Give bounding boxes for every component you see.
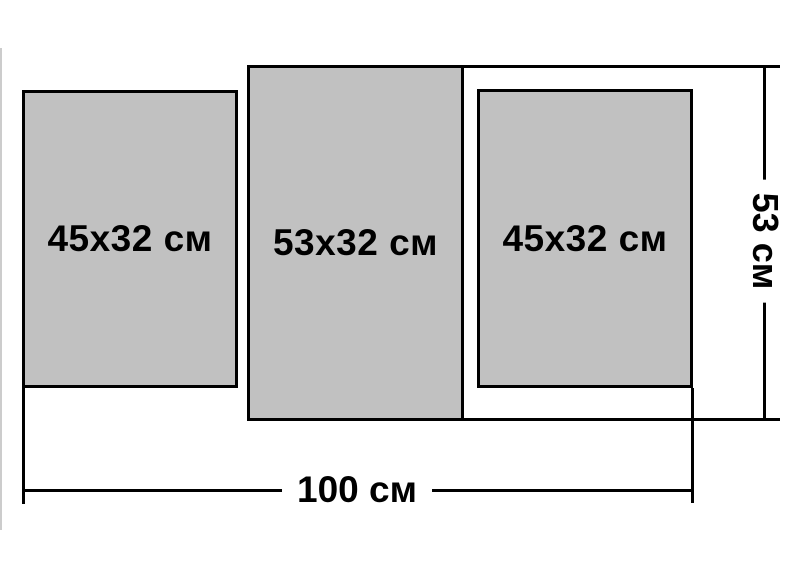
- panel-center-size-label: 53x32 см: [273, 222, 438, 264]
- width-dimension-tick-left: [22, 385, 25, 504]
- width-dimension-tick-right: [691, 388, 694, 503]
- left-edge-artifact-line: [0, 48, 2, 530]
- height-extension-line-bottom: [461, 418, 780, 421]
- height-extension-line-top: [461, 65, 780, 68]
- panel-right-size-label: 45x32 см: [502, 218, 667, 260]
- total-width-label: 100 см: [282, 469, 432, 511]
- triptych-size-diagram: 45x32 см 53x32 см 45x32 см 100 см 53 см: [0, 0, 800, 569]
- total-height-label: 53 см: [744, 180, 786, 303]
- panel-center: 53x32 см: [247, 65, 464, 421]
- panel-left-size-label: 45x32 см: [47, 218, 212, 260]
- panel-right: 45x32 см: [477, 89, 693, 388]
- panel-left: 45x32 см: [22, 90, 238, 388]
